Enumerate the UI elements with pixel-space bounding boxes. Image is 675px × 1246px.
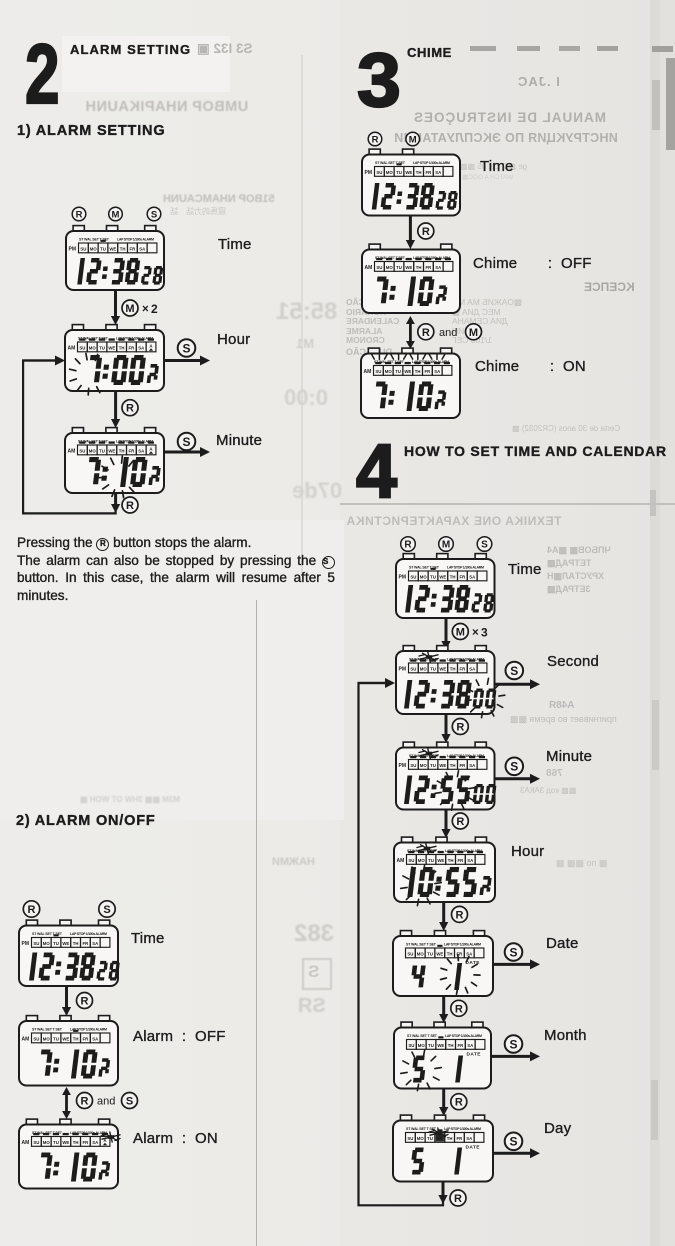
svg-text:MO: MO bbox=[385, 369, 393, 374]
svg-text:R: R bbox=[454, 1193, 462, 1205]
svg-text:R: R bbox=[28, 904, 36, 916]
svg-text:FR: FR bbox=[458, 1043, 465, 1048]
svg-text:LAP STOP 1/100s ALARM: LAP STOP 1/100s ALARM bbox=[444, 942, 481, 946]
svg-text:R: R bbox=[76, 209, 83, 220]
svg-text:TU: TU bbox=[427, 951, 433, 956]
svg-text:SA: SA bbox=[92, 941, 98, 946]
svg-text:WE: WE bbox=[439, 574, 446, 579]
svg-text:TH: TH bbox=[119, 448, 125, 453]
svg-text:MO: MO bbox=[386, 265, 394, 270]
svg-text:WE: WE bbox=[439, 763, 446, 768]
svg-text:FR: FR bbox=[130, 246, 137, 251]
svg-text:TH: TH bbox=[447, 1136, 453, 1141]
svg-text:FR: FR bbox=[83, 1036, 90, 1041]
svg-text:LAP STOP 1/100s ALARM: LAP STOP 1/100s ALARM bbox=[70, 932, 107, 936]
svg-text:TH: TH bbox=[448, 858, 454, 863]
svg-text:TH: TH bbox=[416, 170, 422, 175]
svg-text:SA: SA bbox=[434, 369, 440, 374]
svg-text:SU: SU bbox=[410, 574, 416, 579]
svg-text:WE: WE bbox=[436, 951, 443, 956]
svg-text:FR: FR bbox=[83, 941, 90, 946]
svg-text:WE: WE bbox=[108, 448, 115, 453]
svg-text:AM: AM bbox=[22, 1037, 30, 1043]
svg-text:WE: WE bbox=[439, 666, 446, 671]
svg-text:M: M bbox=[442, 540, 450, 551]
svg-text:S: S bbox=[481, 540, 488, 551]
svg-text:R: R bbox=[126, 403, 134, 415]
svg-text:PM: PM bbox=[399, 575, 407, 581]
svg-text:SU: SU bbox=[408, 858, 414, 863]
svg-text:WE: WE bbox=[437, 1043, 444, 1048]
svg-text:SU: SU bbox=[407, 1136, 413, 1141]
svg-text:PM: PM bbox=[22, 941, 30, 947]
svg-text:SU: SU bbox=[33, 1140, 39, 1145]
svg-text:PM: PM bbox=[399, 763, 407, 769]
svg-text:TU: TU bbox=[395, 369, 401, 374]
svg-text:R: R bbox=[126, 500, 134, 512]
svg-text:ST WAL SET T SET: ST WAL SET T SET bbox=[407, 1034, 438, 1038]
svg-text:TU: TU bbox=[427, 1136, 433, 1141]
svg-text:and: and bbox=[97, 1096, 115, 1108]
svg-text:ST WAL SET T SET: ST WAL SET T SET bbox=[32, 1027, 63, 1031]
svg-text:MO: MO bbox=[89, 345, 97, 350]
svg-text:FR: FR bbox=[426, 265, 433, 270]
svg-text:SA: SA bbox=[469, 763, 475, 768]
svg-text:LAP STOP 1/100s ALARM: LAP STOP 1/100s ALARM bbox=[445, 1034, 482, 1038]
svg-text:SA: SA bbox=[469, 666, 475, 671]
svg-text:S: S bbox=[509, 1037, 517, 1051]
svg-text:AM: AM bbox=[68, 449, 76, 455]
svg-text:SA: SA bbox=[139, 246, 145, 251]
svg-text:TU: TU bbox=[99, 345, 105, 350]
svg-text:2: 2 bbox=[151, 302, 158, 316]
svg-text:and: and bbox=[439, 327, 457, 339]
svg-text:R: R bbox=[372, 134, 379, 145]
svg-text:PM: PM bbox=[365, 170, 373, 176]
svg-text:TH: TH bbox=[73, 1036, 79, 1041]
svg-text:WE: WE bbox=[109, 246, 116, 251]
svg-text:SU: SU bbox=[79, 448, 85, 453]
svg-text:WE: WE bbox=[62, 1140, 69, 1145]
svg-text:SU: SU bbox=[80, 246, 86, 251]
svg-text:AM: AM bbox=[364, 369, 372, 375]
svg-text:MO: MO bbox=[90, 246, 98, 251]
svg-text:TU: TU bbox=[430, 574, 436, 579]
svg-text:FR: FR bbox=[458, 858, 465, 863]
svg-text:TU: TU bbox=[100, 246, 106, 251]
svg-text:MO: MO bbox=[420, 666, 428, 671]
svg-text:WE: WE bbox=[108, 345, 115, 350]
svg-text:R: R bbox=[422, 226, 430, 238]
svg-text:TH: TH bbox=[447, 951, 453, 956]
svg-text:R: R bbox=[81, 1096, 89, 1108]
svg-text:R: R bbox=[456, 909, 464, 921]
svg-text:×: × bbox=[142, 304, 149, 316]
svg-text:SU: SU bbox=[33, 941, 39, 946]
svg-text:R: R bbox=[455, 1003, 463, 1015]
svg-text:TU: TU bbox=[99, 448, 105, 453]
svg-text:S: S bbox=[182, 341, 190, 355]
svg-text:M: M bbox=[125, 303, 134, 315]
svg-text:LAP STOP 1/100s ALARM: LAP STOP 1/100s ALARM bbox=[447, 565, 484, 569]
svg-text:AM: AM bbox=[22, 1140, 30, 1146]
svg-text:TU: TU bbox=[428, 1043, 434, 1048]
svg-text:×: × bbox=[472, 627, 479, 639]
svg-text:R: R bbox=[456, 722, 464, 734]
svg-text:SU: SU bbox=[408, 1043, 414, 1048]
svg-text:S: S bbox=[182, 435, 190, 449]
svg-text:TU: TU bbox=[53, 1140, 59, 1145]
svg-text:SU: SU bbox=[410, 763, 416, 768]
svg-text:R: R bbox=[456, 816, 464, 828]
svg-text:TH: TH bbox=[450, 763, 456, 768]
svg-text:MO: MO bbox=[43, 941, 51, 946]
svg-text:AM: AM bbox=[365, 265, 373, 271]
svg-text:DATE: DATE bbox=[466, 960, 481, 966]
svg-text:SA: SA bbox=[435, 170, 441, 175]
svg-text:SA: SA bbox=[466, 951, 472, 956]
svg-text:MO: MO bbox=[386, 170, 394, 175]
svg-text:WE: WE bbox=[405, 170, 412, 175]
svg-text:SA: SA bbox=[138, 448, 144, 453]
svg-text:FR: FR bbox=[426, 170, 433, 175]
svg-text:R: R bbox=[81, 996, 89, 1008]
svg-text:S: S bbox=[151, 209, 157, 220]
svg-text:TH: TH bbox=[448, 1043, 454, 1048]
svg-text:MO: MO bbox=[89, 448, 97, 453]
svg-text:MO: MO bbox=[417, 951, 425, 956]
svg-text:MO: MO bbox=[417, 1136, 425, 1141]
svg-text:SA: SA bbox=[467, 1043, 473, 1048]
svg-text:MO: MO bbox=[418, 858, 426, 863]
svg-text:MO: MO bbox=[43, 1140, 51, 1145]
svg-text:TH: TH bbox=[415, 369, 421, 374]
svg-text:3: 3 bbox=[481, 626, 488, 640]
svg-text:SU: SU bbox=[79, 345, 85, 350]
svg-text:SU: SU bbox=[33, 1036, 39, 1041]
svg-text:FR: FR bbox=[129, 345, 136, 350]
svg-text:SU: SU bbox=[410, 666, 416, 671]
svg-text:TU: TU bbox=[428, 858, 434, 863]
svg-text:PM: PM bbox=[399, 667, 407, 673]
svg-text:FR: FR bbox=[460, 574, 467, 579]
svg-text:TH: TH bbox=[119, 345, 125, 350]
svg-text:SA: SA bbox=[466, 1136, 472, 1141]
svg-text:S: S bbox=[510, 760, 518, 774]
svg-text:M: M bbox=[469, 327, 478, 339]
svg-text:S: S bbox=[509, 945, 517, 959]
svg-text:FR: FR bbox=[129, 448, 136, 453]
svg-text:TH: TH bbox=[120, 246, 126, 251]
svg-text:SU: SU bbox=[376, 265, 382, 270]
svg-text:TH: TH bbox=[450, 574, 456, 579]
svg-text:R: R bbox=[422, 327, 430, 339]
svg-text:M: M bbox=[409, 134, 417, 145]
svg-text:SA: SA bbox=[467, 858, 473, 863]
svg-text:LAP STOP 1/100s ALARM: LAP STOP 1/100s ALARM bbox=[444, 1127, 481, 1131]
svg-text:M: M bbox=[456, 627, 465, 639]
svg-text:WE: WE bbox=[437, 858, 444, 863]
svg-text:LAP STOP 1/100s ALARM: LAP STOP 1/100s ALARM bbox=[413, 161, 450, 165]
svg-text:SU: SU bbox=[376, 170, 382, 175]
svg-text:AM: AM bbox=[397, 858, 405, 864]
svg-text:FR: FR bbox=[425, 369, 432, 374]
svg-text:S: S bbox=[509, 1135, 517, 1149]
svg-text:WE: WE bbox=[405, 265, 412, 270]
svg-text:LAP STOP 1/100s ALARM: LAP STOP 1/100s ALARM bbox=[117, 237, 154, 241]
svg-text:SU: SU bbox=[375, 369, 381, 374]
svg-text:TH: TH bbox=[73, 941, 79, 946]
svg-text:WE: WE bbox=[62, 941, 69, 946]
svg-text:WE: WE bbox=[62, 1036, 69, 1041]
svg-text:MO: MO bbox=[420, 574, 428, 579]
svg-text:SA: SA bbox=[92, 1140, 98, 1145]
svg-text:MO: MO bbox=[420, 763, 428, 768]
svg-text:SA: SA bbox=[469, 574, 475, 579]
svg-text:DATE: DATE bbox=[467, 1052, 482, 1058]
svg-text:S: S bbox=[103, 904, 110, 916]
svg-text:TU: TU bbox=[396, 170, 402, 175]
svg-text:WE: WE bbox=[404, 369, 411, 374]
svg-text:S: S bbox=[126, 1096, 133, 1108]
svg-text:TU: TU bbox=[396, 265, 402, 270]
svg-text:SA: SA bbox=[435, 265, 441, 270]
svg-text:S: S bbox=[510, 664, 518, 678]
svg-text:FR: FR bbox=[457, 1136, 464, 1141]
svg-text:MO: MO bbox=[418, 1043, 426, 1048]
svg-text:AM: AM bbox=[68, 346, 76, 352]
svg-text:R: R bbox=[404, 540, 412, 551]
svg-text:DATE: DATE bbox=[466, 1145, 481, 1151]
svg-text:TU: TU bbox=[53, 1036, 59, 1041]
svg-text:SA: SA bbox=[138, 345, 144, 350]
svg-text:FR: FR bbox=[460, 666, 467, 671]
svg-text:PM: PM bbox=[69, 247, 77, 253]
svg-text:MO: MO bbox=[43, 1036, 51, 1041]
svg-text:TH: TH bbox=[73, 1140, 79, 1145]
svg-text:TU: TU bbox=[53, 941, 59, 946]
svg-text:R: R bbox=[455, 1097, 463, 1109]
svg-text:TH: TH bbox=[416, 265, 422, 270]
svg-text:TU: TU bbox=[430, 666, 436, 671]
svg-text:SA: SA bbox=[92, 1036, 98, 1041]
svg-text:TH: TH bbox=[450, 666, 456, 671]
svg-text:TU: TU bbox=[430, 763, 436, 768]
svg-text:ST WAL SET T SET: ST WAL SET T SET bbox=[406, 942, 437, 946]
svg-text:FR: FR bbox=[83, 1140, 90, 1145]
svg-text:M: M bbox=[112, 209, 120, 220]
svg-text:SU: SU bbox=[407, 951, 413, 956]
svg-text:FR: FR bbox=[460, 763, 467, 768]
